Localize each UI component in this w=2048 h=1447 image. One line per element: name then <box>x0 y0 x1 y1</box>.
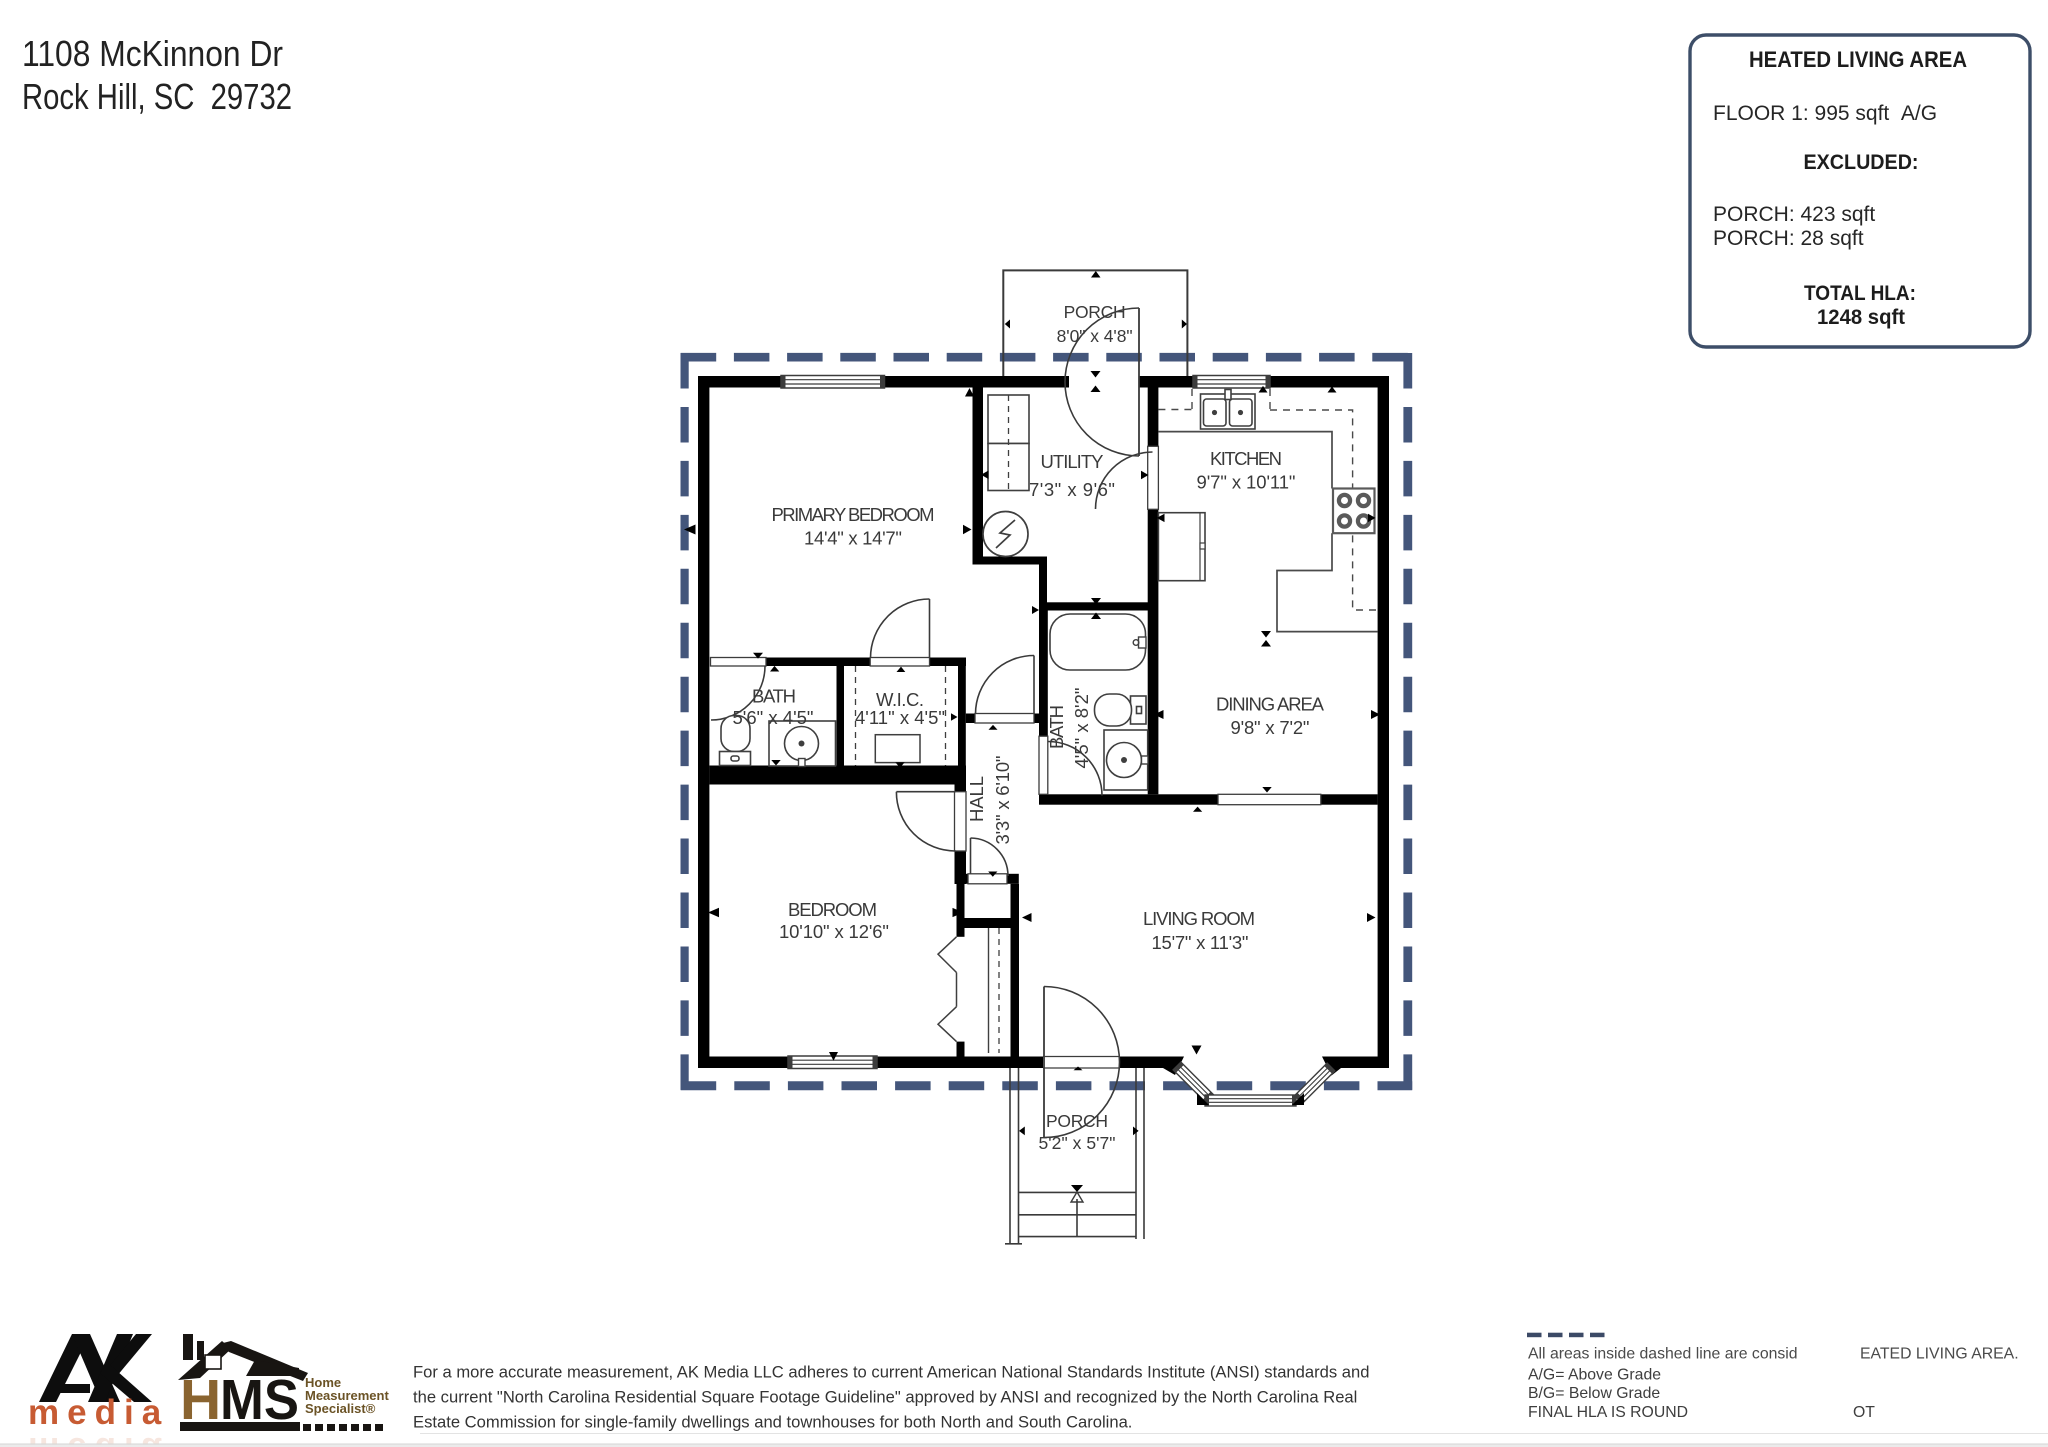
svg-text:PORCH: PORCH <box>1064 302 1126 322</box>
svg-text:Specialist®: Specialist® <box>305 1401 376 1416</box>
svg-text:OT: OT <box>1853 1404 1875 1421</box>
svg-text:PORCH: 423 sqft: PORCH: 423 sqft <box>1713 203 1875 226</box>
svg-text:UTILITY: UTILITY <box>1041 451 1104 472</box>
svg-text:4'11" x 4'5": 4'11" x 4'5" <box>855 707 945 728</box>
svg-text:Estate Commission for single-f: Estate Commission for single-family dwel… <box>413 1413 1132 1432</box>
svg-text:HEATED LIVING AREA: HEATED LIVING AREA <box>1749 47 1967 72</box>
svg-text:FINAL HLA IS ROUND: FINAL HLA IS ROUND <box>1528 1404 1688 1421</box>
svg-text:1108 McKinnon Dr: 1108 McKinnon Dr <box>22 33 283 74</box>
svg-text:8'0" x 4'8": 8'0" x 4'8" <box>1057 326 1133 346</box>
svg-text:BEDROOM: BEDROOM <box>788 899 877 920</box>
svg-text:9'8" x 7'2": 9'8" x 7'2" <box>1231 717 1310 738</box>
svg-text:9'7" x 10'11": 9'7" x 10'11" <box>1197 472 1296 493</box>
svg-text:10'10" x 12'6": 10'10" x 12'6" <box>779 921 889 942</box>
svg-text:PRIMARY BEDROOM: PRIMARY BEDROOM <box>772 504 935 525</box>
svg-text:LIVING ROOM: LIVING ROOM <box>1143 908 1255 929</box>
svg-text:5'2" x 5'7": 5'2" x 5'7" <box>1039 1133 1116 1153</box>
svg-text:TOTAL HLA:: TOTAL HLA: <box>1804 281 1916 305</box>
svg-text:DINING AREA: DINING AREA <box>1216 694 1325 715</box>
svg-text:FLOOR 1: 995 sqft A/G: FLOOR 1: 995 sqft A/G <box>1713 102 1937 125</box>
svg-text:the current "North Carolina Re: the current "North Carolina Residential … <box>413 1388 1357 1407</box>
svg-text:KITCHEN: KITCHEN <box>1210 448 1282 469</box>
svg-text:B/G= Below Grade: B/G= Below Grade <box>1528 1385 1660 1402</box>
svg-text:PORCH: 28 sqft: PORCH: 28 sqft <box>1713 227 1864 250</box>
svg-text:EXCLUDED:: EXCLUDED: <box>1804 150 1919 174</box>
svg-text:3'3" x 6'10": 3'3" x 6'10" <box>992 756 1013 845</box>
svg-text:4'5" x 8'2": 4'5" x 8'2" <box>1071 688 1092 769</box>
svg-text:14'4" x 14'7": 14'4" x 14'7" <box>804 528 902 549</box>
svg-text:HALL: HALL <box>966 776 987 822</box>
svg-text:A/G= Above Grade: A/G= Above Grade <box>1528 1366 1661 1383</box>
svg-text:1248 sqft: 1248 sqft <box>1817 305 1905 329</box>
svg-text:Rock Hill, SC 29732: Rock Hill, SC 29732 <box>22 76 292 117</box>
svg-text:5'6" x 4'5": 5'6" x 4'5" <box>733 707 814 728</box>
svg-text:7'3" x 9'6": 7'3" x 9'6" <box>1029 479 1115 500</box>
svg-text:media: media <box>28 1393 169 1432</box>
svg-text:PORCH: PORCH <box>1046 1111 1108 1131</box>
svg-text:BATH: BATH <box>1046 705 1067 749</box>
svg-text:For a more accurate measuremen: For a more accurate measurement, AK Medi… <box>413 1363 1369 1382</box>
svg-text:All areas inside dashed line a: All areas inside dashed line are consid <box>1528 1346 1798 1363</box>
svg-text:EATED LIVING AREA.: EATED LIVING AREA. <box>1860 1346 2019 1363</box>
svg-text:15'7" x 11'3": 15'7" x 11'3" <box>1152 932 1249 953</box>
svg-text:BATH: BATH <box>752 686 796 707</box>
